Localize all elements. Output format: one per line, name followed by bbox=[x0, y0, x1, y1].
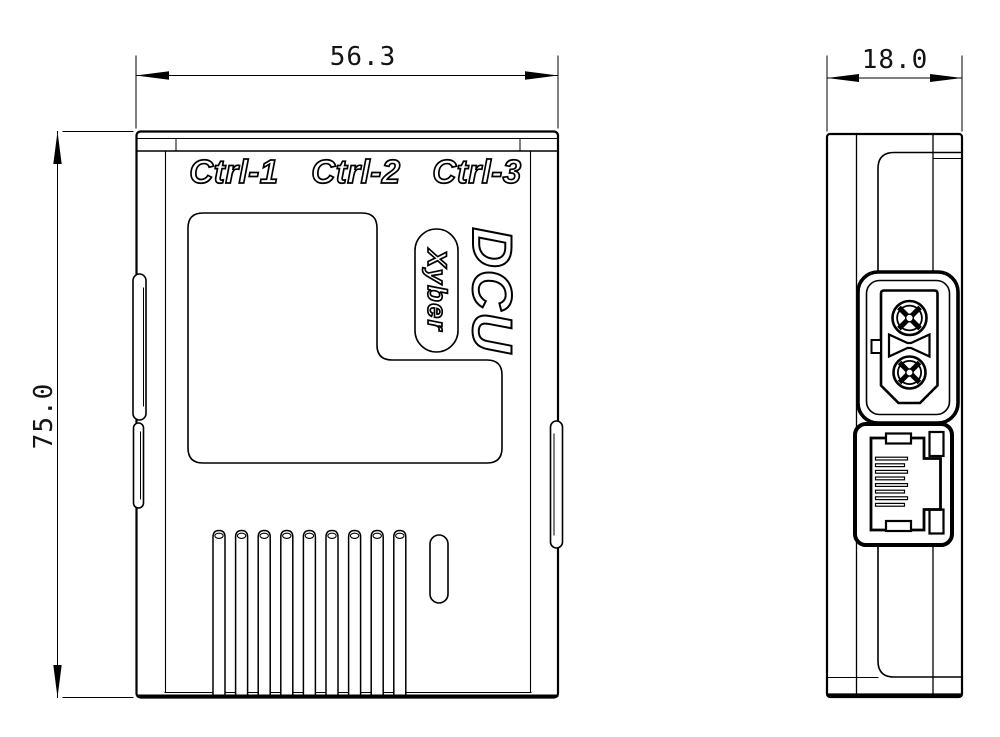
port-label-ctrl-1: Ctrl-1 bbox=[169, 153, 299, 191]
product-name-label: DCU bbox=[461, 211, 523, 371]
port-label-ctrl-2: Ctrl-2 bbox=[291, 153, 421, 191]
dimension-value-height: 75.0 bbox=[29, 366, 59, 466]
port-label-ctrl-3: Ctrl-3 bbox=[412, 153, 542, 191]
vent-slots bbox=[213, 531, 406, 695]
xt30-power-connector-icon bbox=[858, 272, 958, 423]
rj45-ethernet-port-icon bbox=[855, 424, 952, 545]
dimension-value-width: 56.3 bbox=[310, 42, 416, 72]
arrowhead-left-icon bbox=[136, 71, 169, 80]
technical-drawing-canvas: 56.3 18.0 75.0 Ctrl-1 Ctrl-2 Ctrl-3 DCU … bbox=[0, 0, 1000, 737]
right-mounting-clip bbox=[551, 421, 563, 548]
dimension-front-height bbox=[53, 132, 133, 698]
arrowhead-right-icon bbox=[930, 74, 962, 82]
dimension-value-depth: 18.0 bbox=[844, 45, 946, 75]
arrowhead-left-icon bbox=[827, 74, 859, 82]
arrowhead-bottom-icon bbox=[53, 665, 61, 698]
side-view bbox=[827, 134, 962, 697]
arrowhead-right-icon bbox=[525, 71, 558, 80]
arrowhead-top-icon bbox=[53, 132, 61, 165]
brand-label: Xyber bbox=[416, 230, 457, 351]
left-mounting-clips bbox=[133, 274, 146, 508]
